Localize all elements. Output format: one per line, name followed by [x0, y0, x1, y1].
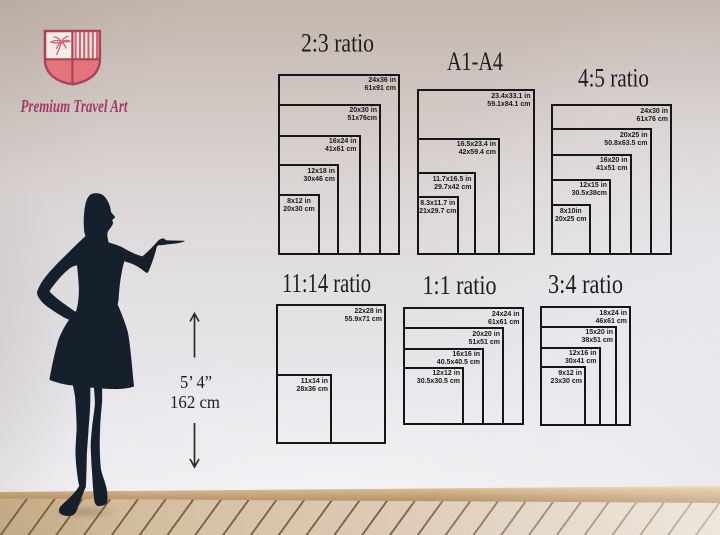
svg-text:3:4 ratio: 3:4 ratio [548, 269, 623, 299]
svg-text:1:1 ratio: 1:1 ratio [423, 270, 497, 300]
svg-text:5’ 4”: 5’ 4” [180, 372, 212, 392]
svg-text:4:5 ratio: 4:5 ratio [578, 64, 649, 93]
svg-text:11:14 ratio: 11:14 ratio [282, 268, 371, 298]
svg-text:A1-A4: A1-A4 [447, 47, 503, 76]
svg-text:2:3 ratio: 2:3 ratio [301, 29, 374, 58]
svg-text:162 cm: 162 cm [170, 392, 220, 412]
svg-text:Premium Travel Art: Premium Travel Art [20, 96, 128, 116]
